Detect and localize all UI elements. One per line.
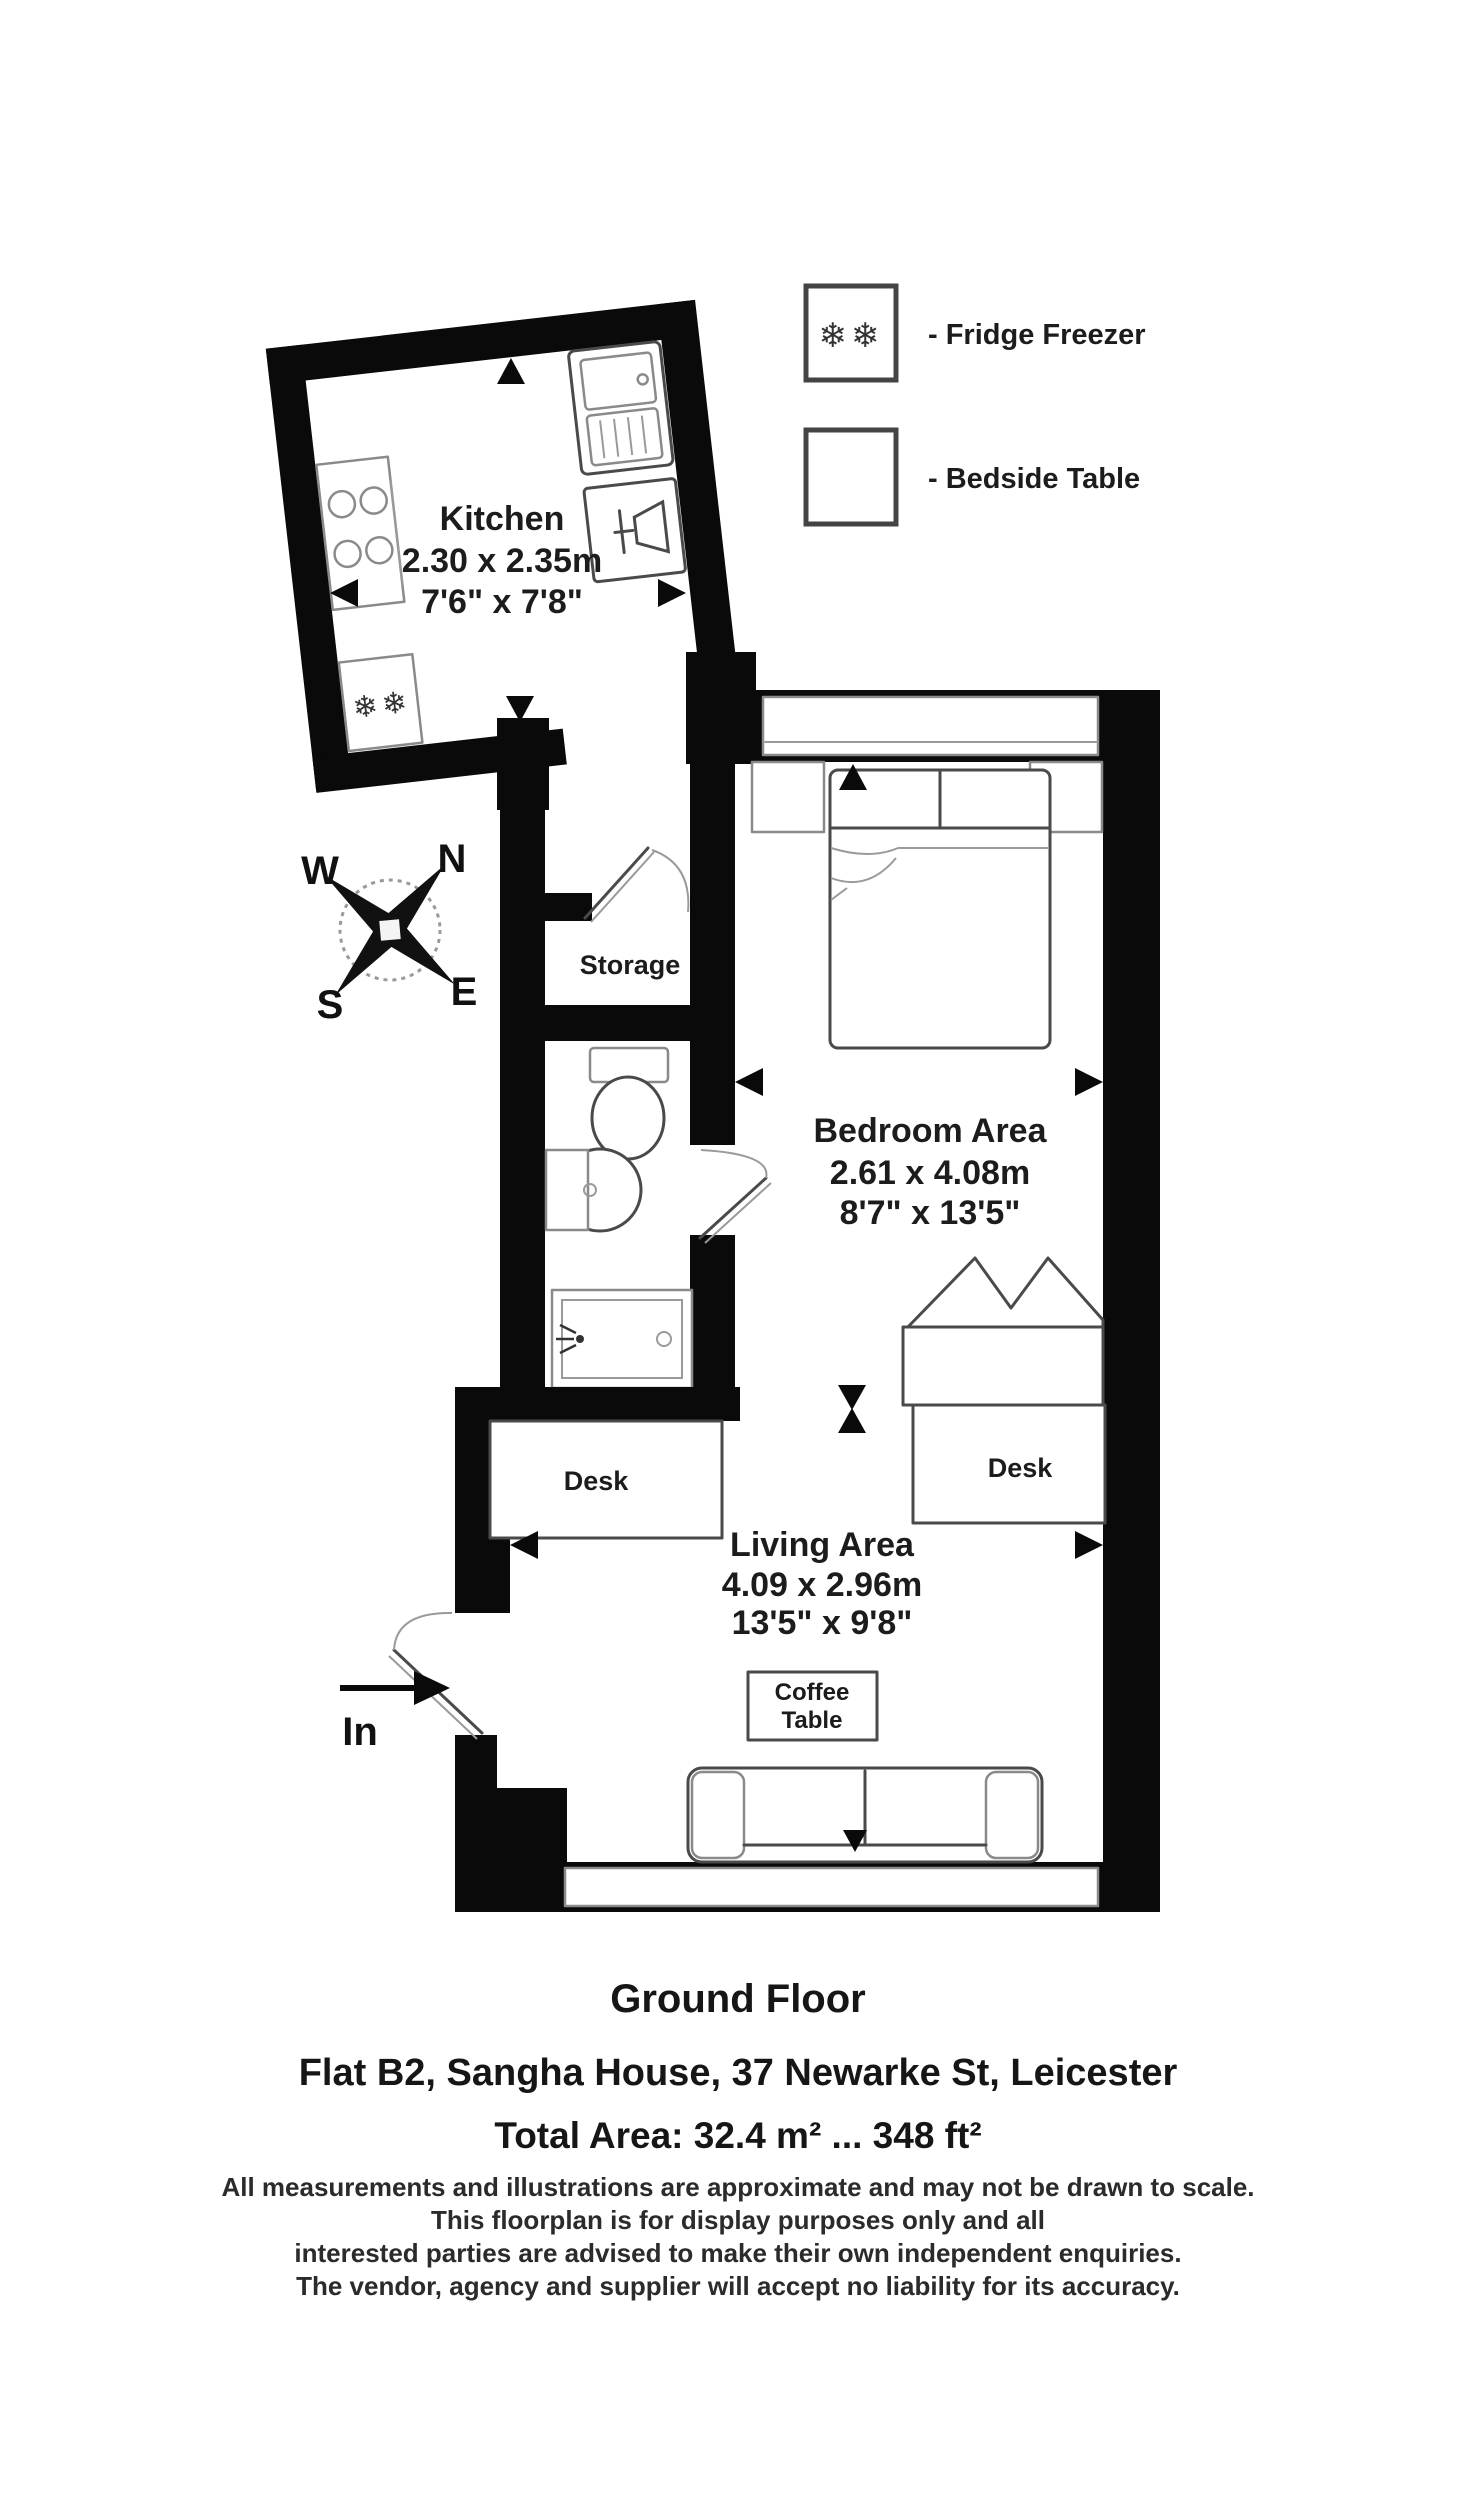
- corridor-wall-left: [500, 730, 545, 1390]
- measure-marker-up-icon: [497, 358, 525, 384]
- coffee-table-label1: Coffee: [775, 1679, 850, 1706]
- storage-door-arc: [652, 850, 688, 912]
- living-window: [565, 1868, 1098, 1906]
- bedroom-dim-metric: 2.61 x 4.08m: [830, 1154, 1030, 1192]
- measure-marker-right-icon: [1075, 1531, 1103, 1559]
- compass-w: W: [301, 849, 339, 893]
- measure-marker-up-icon: [838, 1408, 866, 1433]
- legend-fridge-label: - Fridge Freezer: [928, 319, 1146, 351]
- compass-rose: N W S E: [270, 810, 510, 1050]
- sofa-arm-right: [986, 1772, 1038, 1858]
- floorplan: ❄❄ Kitchen 2.30 x 2.35m 7'6" x 7'8" Stor…: [0, 0, 1465, 2500]
- storage-bathroom-wall: [500, 1005, 735, 1041]
- bathroom-door-leaf: [705, 1183, 771, 1243]
- shower-head-icon: [576, 1335, 584, 1343]
- legend: ❄❄ - Fridge Freezer - Bedside Table: [806, 286, 1146, 524]
- entrance-label: In: [342, 1710, 378, 1754]
- compass-s: S: [317, 983, 344, 1027]
- storage-door-leaf: [591, 852, 654, 922]
- bedroom-window: [763, 697, 1098, 755]
- legend-bedside-label: - Bedside Table: [928, 463, 1140, 495]
- kitchen-counter-hob: [316, 457, 404, 610]
- hob-burner-icon: [359, 486, 388, 515]
- fridge-freezer-icon: ❄❄: [351, 686, 413, 725]
- bedside-table-left: [752, 762, 824, 832]
- storage-label: Storage: [580, 950, 681, 980]
- disclaimer-line: interested parties are advised to make t…: [294, 2238, 1181, 2268]
- bedroom-label: Bedroom Area: [813, 1112, 1047, 1150]
- legend-fridge-icon: ❄❄: [819, 317, 884, 355]
- bathroom-door-leaf: [700, 1178, 766, 1238]
- corridor-wall-right-lower: [690, 1235, 735, 1390]
- bathroom-door-arc: [701, 1150, 766, 1178]
- sofa-arm-left: [692, 1772, 744, 1858]
- compass-n: N: [438, 837, 467, 881]
- storage-door-leaf: [585, 848, 648, 918]
- measure-marker-right-icon: [658, 579, 686, 607]
- living-dim-metric: 4.09 x 2.96m: [722, 1566, 922, 1604]
- hob-burner-icon: [328, 490, 357, 519]
- desk-left-label: Desk: [564, 1466, 630, 1496]
- wall-right: [1103, 690, 1160, 1912]
- hob-burner-icon: [333, 539, 362, 568]
- disclaimer-line: All measurements and illustrations are a…: [221, 2172, 1254, 2202]
- kitchen-dim-imperial: 7'6" x 7'8": [421, 583, 583, 621]
- living-label: Living Area: [730, 1526, 915, 1564]
- disclaimer-line: This floorplan is for display purposes o…: [431, 2205, 1045, 2235]
- sink-tap-icon: [637, 374, 648, 385]
- bedroom-dim-imperial: 8'7" x 13'5": [840, 1194, 1021, 1232]
- toilet-bowl: [592, 1077, 664, 1159]
- measure-marker-right-icon: [1075, 1068, 1103, 1096]
- entrance-door-stub: [455, 1735, 497, 1790]
- measure-marker-down-icon: [838, 1385, 866, 1410]
- wardrobe-open-doors: [905, 1258, 1103, 1330]
- wardrobe-base: [903, 1327, 1103, 1405]
- measure-marker-left-icon: [735, 1068, 763, 1096]
- entrance-door-leaf: [389, 1656, 477, 1739]
- hob-burner-icon: [365, 536, 394, 565]
- desk-right-label: Desk: [988, 1453, 1054, 1483]
- in-arrow-head-icon: [414, 1671, 450, 1705]
- total-area: Total Area: 32.4 m² ... 348 ft²: [494, 2115, 981, 2156]
- sink-drainer: [586, 408, 662, 466]
- entrance-door-arc: [394, 1613, 452, 1650]
- compass-e: E: [451, 970, 478, 1014]
- address-line: Flat B2, Sangha House, 37 Newarke St, Le…: [299, 2052, 1178, 2094]
- basin-back: [546, 1150, 588, 1230]
- kitchen-label: Kitchen: [440, 500, 565, 538]
- bathroom-living-wall: [455, 1387, 740, 1421]
- floor-title: Ground Floor: [610, 1977, 866, 2021]
- legend-bedside-box: [806, 430, 896, 524]
- living-dim-imperial: 13'5" x 9'8": [732, 1604, 913, 1642]
- kitchen-dim-metric: 2.30 x 2.35m: [402, 542, 602, 580]
- disclaimer-line: The vendor, agency and supplier will acc…: [296, 2271, 1180, 2301]
- coffee-table-label2: Table: [782, 1707, 843, 1734]
